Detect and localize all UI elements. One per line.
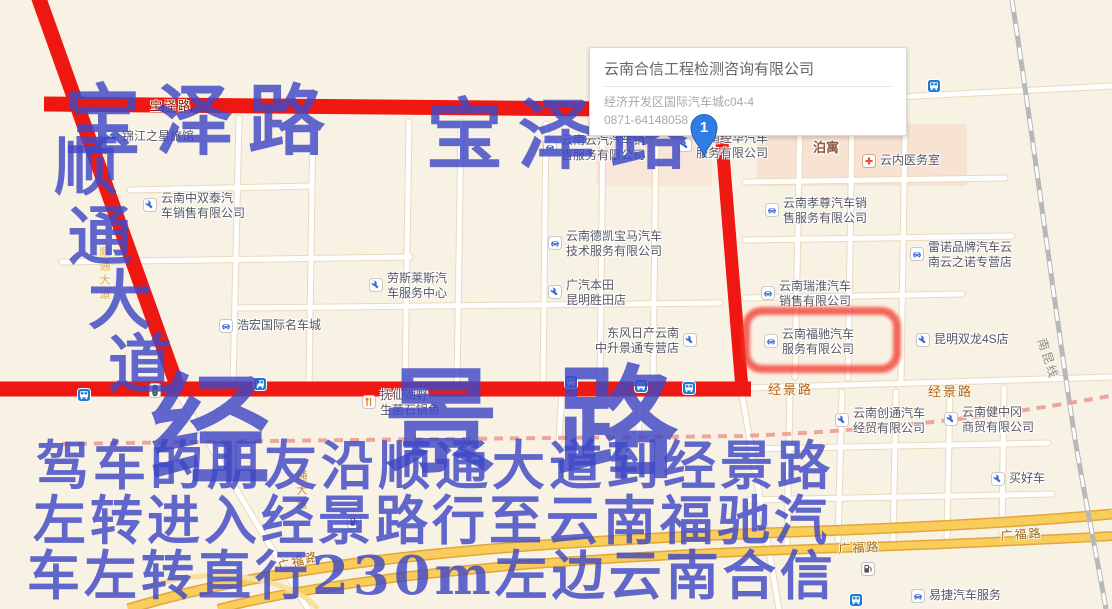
poi-label-line: 昆明双龙4S店 [934,332,1009,346]
car-icon[interactable] [219,319,233,333]
road-name-label: 经景路 [768,379,813,398]
popup-title: 云南合信工程检测咨询有限公司 [604,58,892,87]
wrench-icon[interactable] [991,472,1005,486]
road-name-label: 宝泽路 [150,97,192,114]
car-icon[interactable] [761,286,775,300]
car-icon[interactable] [765,203,779,217]
car-icon[interactable] [543,140,557,154]
poi-label[interactable]: 云南云汽汽车销售服务有限公司 [561,133,645,163]
poi-label[interactable]: 东风日产云南中升景通专营店 [595,326,679,356]
car-icon[interactable] [911,589,925,603]
poi-label-line: 车服务中心 [387,286,447,300]
poi-label-line: 云南德凯宝马汽车 [566,229,662,243]
poi-label-line: 技术服务有限公司 [566,244,662,258]
poi-label-line: 浩宏国际名车城 [237,318,321,332]
poi-label[interactable]: 雷诺品牌汽车云南云之诺专营店 [928,240,1012,270]
road-name-label: 经景路 [928,381,973,400]
bus-stop-icon[interactable] [564,375,578,389]
poi-label-line: 广汽本田 [566,278,614,292]
bus-stop-icon[interactable] [682,381,696,395]
marker-number: 1 [689,119,719,136]
poi-label[interactable]: 云南瑞淮汽车销售有限公司 [779,279,851,309]
poi-label-line: 生菌石锅鱼 [380,403,440,417]
poi-label-line: 泊寓 [813,140,839,155]
poi-label[interactable]: 易捷汽车服务 [929,588,1001,603]
poi-label[interactable]: 云南中双泰汽车销售有限公司 [161,191,245,221]
poi-label-line: 中升景通专营店 [595,341,679,355]
wrench-icon[interactable] [835,413,849,427]
bus-stop-icon[interactable] [253,377,267,391]
cross-icon[interactable] [862,154,876,168]
poi-label-line: 云内医务室 [880,153,940,167]
wrench-icon[interactable] [944,412,958,426]
poi-label[interactable]: 云南福驰汽车服务有限公司 [782,327,854,357]
poi-label-line: 云南福驰汽车 [782,327,854,341]
poi-label[interactable]: 云南健中冈商贸有限公司 [962,405,1034,435]
poi-label-line: 抚仙湖野 [380,388,428,402]
road-name-label: 广福路 [1000,524,1043,544]
route-line-shuntong [38,0,179,391]
poi-label[interactable]: 抚仙湖野生菌石锅鱼 [380,388,440,418]
wrench-icon[interactable] [683,333,697,347]
road-name-label: 广福路 [838,538,881,557]
popup-address: 经济开发区国际汽车城c04-4 [604,93,892,110]
popup-phone: 0871-64148058 [604,113,892,127]
poi-label-line: 车销售有限公司 [161,206,245,220]
poi-label-line: 云南孝尊汽车销 [783,196,867,210]
route-annotation [0,0,1112,609]
poi-label-line: 服务有限公司 [782,342,854,356]
poi-label-line: 云南创通汽车 [853,406,925,420]
poi-label-line: 云南健中冈 [962,405,1022,419]
poi-label[interactable]: 锦江之星旅馆 [122,129,194,144]
poi-label-line: 昆明胜田店 [566,293,626,307]
poi-label-line: 售服务有限公司 [783,211,867,225]
road-name-label: 顺通大道 [96,246,112,302]
bus-stop-icon[interactable] [849,593,863,607]
poi-label[interactable]: 劳斯莱斯汽车服务中心 [387,271,447,301]
food-icon[interactable] [362,395,376,409]
car-icon[interactable] [764,334,778,348]
poi-label-line: 易捷汽车服务 [929,588,1001,602]
car-icon[interactable] [910,247,924,261]
bus-stop-icon[interactable] [634,379,648,393]
car-icon[interactable] [548,236,562,250]
info-popup[interactable]: 云南合信工程检测咨询有限公司 经济开发区国际汽车城c04-4 0871-6414… [589,47,907,136]
poi-label[interactable]: 云南创通汽车经贸有限公司 [853,406,925,436]
gas-stop-icon[interactable] [861,562,875,576]
poi-label-line: 云南瑞淮汽车 [779,279,851,293]
poi-label-line: 云南中双泰汽 [161,191,233,205]
bed-icon[interactable] [104,130,118,144]
wrench-icon[interactable] [143,198,157,212]
poi-label[interactable]: 广汽本田昆明胜田店 [566,278,626,308]
poi-label[interactable]: 买好车 [1009,471,1045,486]
poi-label[interactable]: 浩宏国际名车城 [237,318,321,333]
wrench-icon[interactable] [548,285,562,299]
wrench-icon[interactable] [916,333,930,347]
poi-label[interactable]: 云内医务室 [880,153,940,168]
poi-label[interactable]: 云南孝尊汽车销售服务有限公司 [783,196,867,226]
poi-label-line: 雷诺品牌汽车云 [928,240,1012,254]
poi-label-line: 买好车 [1009,471,1045,485]
poi-label-line: 锦江之星旅馆 [122,129,194,143]
poi-label-line: 南云之诺专营店 [928,255,1012,269]
poi-label[interactable]: 昆明双龙4S店 [934,332,1009,347]
wrench-icon[interactable] [369,278,383,292]
road-name-label: 通大道 [293,470,309,512]
map-marker-1[interactable]: 1 [689,114,719,158]
light-stop-icon [149,383,161,398]
gas-stop-icon[interactable] [347,515,361,529]
poi-label-line: 售服务有限公司 [561,148,645,162]
poi-label-line: 经贸有限公司 [853,421,925,435]
bus-stop-icon[interactable] [927,79,941,93]
poi-label-line: 东风日产云南 [607,326,679,340]
poi-label-line: 销售有限公司 [779,294,851,308]
poi-label[interactable]: 云南德凯宝马汽车技术服务有限公司 [566,229,662,259]
area-label[interactable]: 泊寓 [813,140,839,155]
map-canvas[interactable]: 云南合信工程检测咨询有限公司 经济开发区国际汽车城c04-4 0871-6414… [0,0,1112,609]
poi-label-line: 劳斯莱斯汽 [387,271,447,285]
bus-stop-icon[interactable] [77,388,91,402]
poi-label-line: 商贸有限公司 [962,420,1034,434]
